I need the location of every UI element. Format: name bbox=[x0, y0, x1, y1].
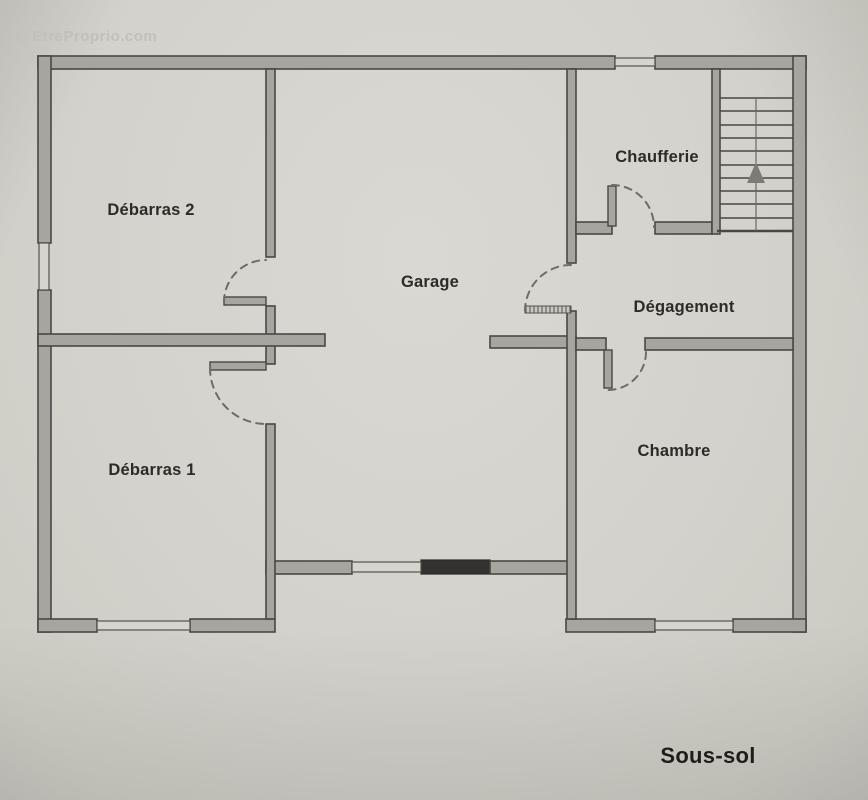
floorplan-svg: Débarras 2 Débarras 1 Garage Chaufferie … bbox=[0, 0, 868, 800]
door-arc-debarras1 bbox=[210, 368, 266, 424]
window-left-debarras2 bbox=[39, 243, 49, 290]
floorplan-photo: Débarras 2 Débarras 1 Garage Chaufferie … bbox=[0, 0, 868, 800]
wall-chaufferie-south-west bbox=[576, 222, 612, 234]
door-leaf-debarras2 bbox=[224, 297, 266, 305]
door-arc-chambre bbox=[608, 352, 646, 390]
wall-divider-low bbox=[266, 424, 275, 619]
wall-bottom-deb1-west bbox=[38, 619, 97, 632]
room-label-garage: Garage bbox=[401, 273, 459, 291]
wall-garage-south-east bbox=[490, 561, 575, 574]
wall-top-east bbox=[655, 56, 806, 69]
staircase bbox=[717, 98, 793, 231]
door-leaf-chaufferie bbox=[608, 186, 616, 226]
floor-title: Sous-sol bbox=[660, 743, 755, 768]
room-label-degagement: Dégagement bbox=[633, 298, 734, 316]
door-sill-garage bbox=[525, 306, 571, 313]
wall-east-top bbox=[567, 69, 576, 263]
wall-garage-south-dark-segment bbox=[421, 560, 490, 574]
wall-bottom-deb1-east bbox=[190, 619, 275, 632]
door-leaf-debarras1 bbox=[210, 362, 266, 370]
room-label-debarras2: Débarras 2 bbox=[107, 201, 194, 219]
wall-top-west bbox=[38, 56, 615, 69]
wall-right bbox=[793, 56, 806, 632]
wall-bottom-chambre-west bbox=[566, 619, 655, 632]
door-arc-chaufferie bbox=[612, 185, 654, 227]
walls bbox=[38, 56, 806, 632]
wall-chambre-north-west bbox=[576, 338, 606, 350]
wall-deb1-north bbox=[38, 334, 325, 346]
wall-garage-south-west bbox=[266, 561, 352, 574]
door-arc-debarras2 bbox=[224, 260, 266, 302]
window-bottom-chambre bbox=[655, 621, 733, 630]
window-top-chaufferie bbox=[615, 58, 655, 66]
watermark: © EtreProprio.com bbox=[16, 28, 157, 45]
wall-east-lower bbox=[567, 311, 576, 619]
wall-bottom-chambre-east bbox=[733, 619, 806, 632]
wall-chaufferie-south-east bbox=[655, 222, 712, 234]
window-garage-south bbox=[352, 562, 421, 572]
wall-stairs-west bbox=[712, 69, 720, 234]
door-arc-garage bbox=[525, 265, 571, 311]
doors bbox=[210, 185, 654, 424]
room-label-chambre: Chambre bbox=[638, 442, 711, 460]
wall-left-upper bbox=[38, 56, 51, 243]
window-bottom-debarras1 bbox=[97, 621, 190, 630]
wall-chambre-north-east bbox=[645, 338, 793, 350]
wall-garage-stub bbox=[490, 336, 576, 348]
room-label-chaufferie: Chaufferie bbox=[615, 148, 699, 166]
door-leaf-chambre bbox=[604, 350, 612, 388]
wall-divider-top bbox=[266, 69, 275, 257]
room-label-debarras1: Débarras 1 bbox=[108, 461, 195, 479]
